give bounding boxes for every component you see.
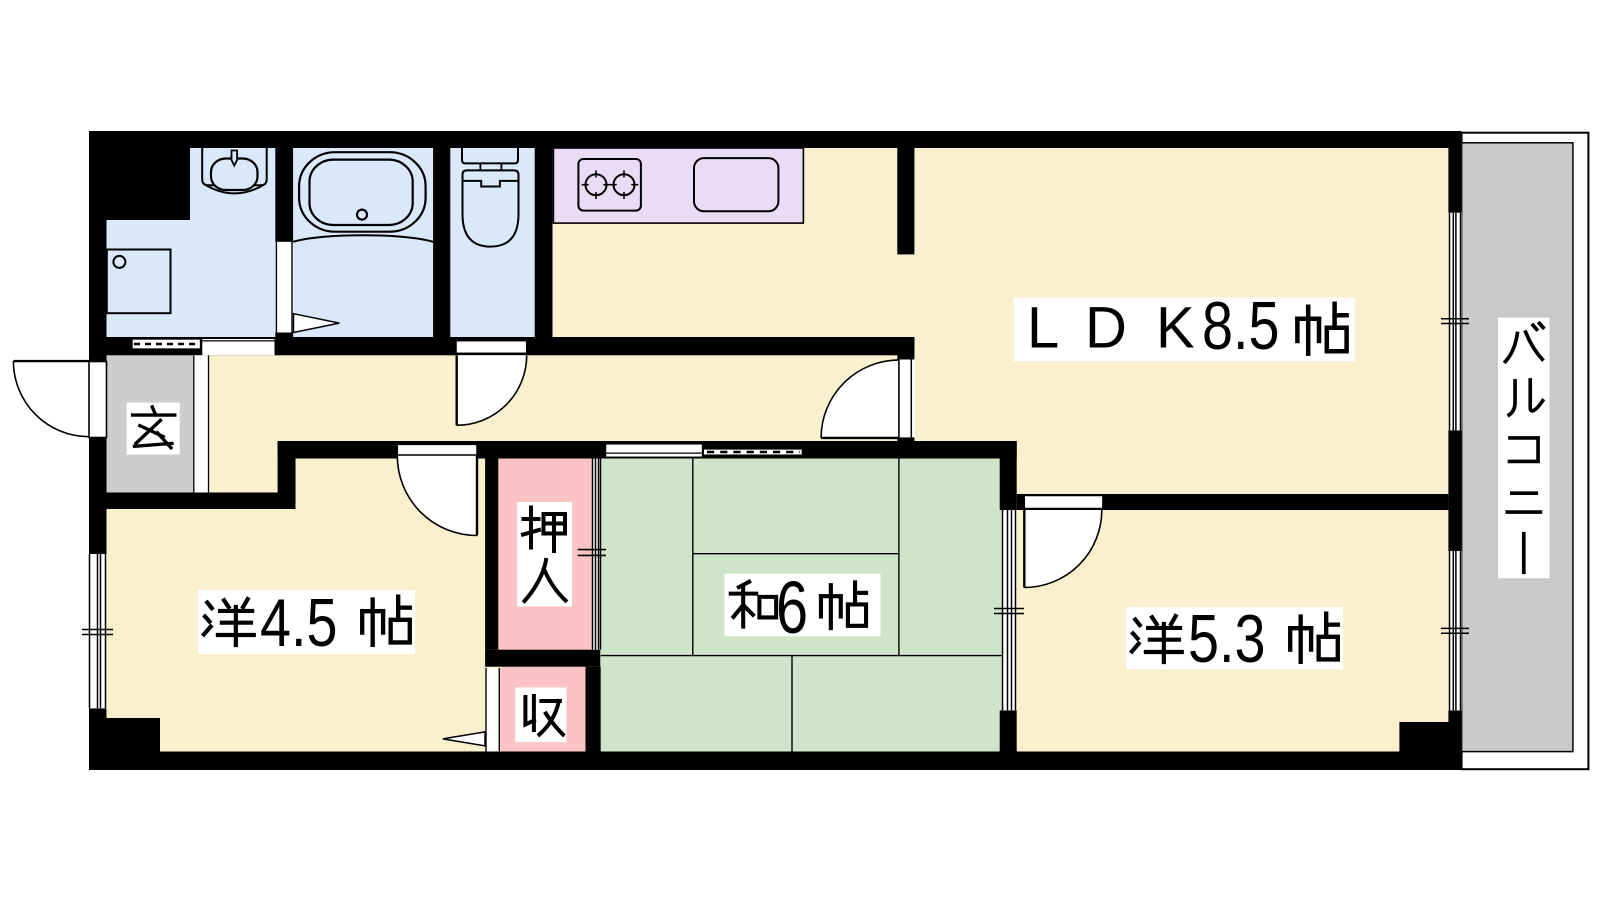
svg-text:6: 6 xyxy=(776,567,808,650)
svg-text:8.5: 8.5 xyxy=(1202,289,1280,364)
svg-text:D: D xyxy=(1085,296,1127,361)
svg-text:L: L xyxy=(1027,296,1059,361)
svg-text:K: K xyxy=(1156,296,1195,361)
svg-text:4.5: 4.5 xyxy=(260,586,338,661)
svg-text:5.3: 5.3 xyxy=(1188,602,1266,677)
